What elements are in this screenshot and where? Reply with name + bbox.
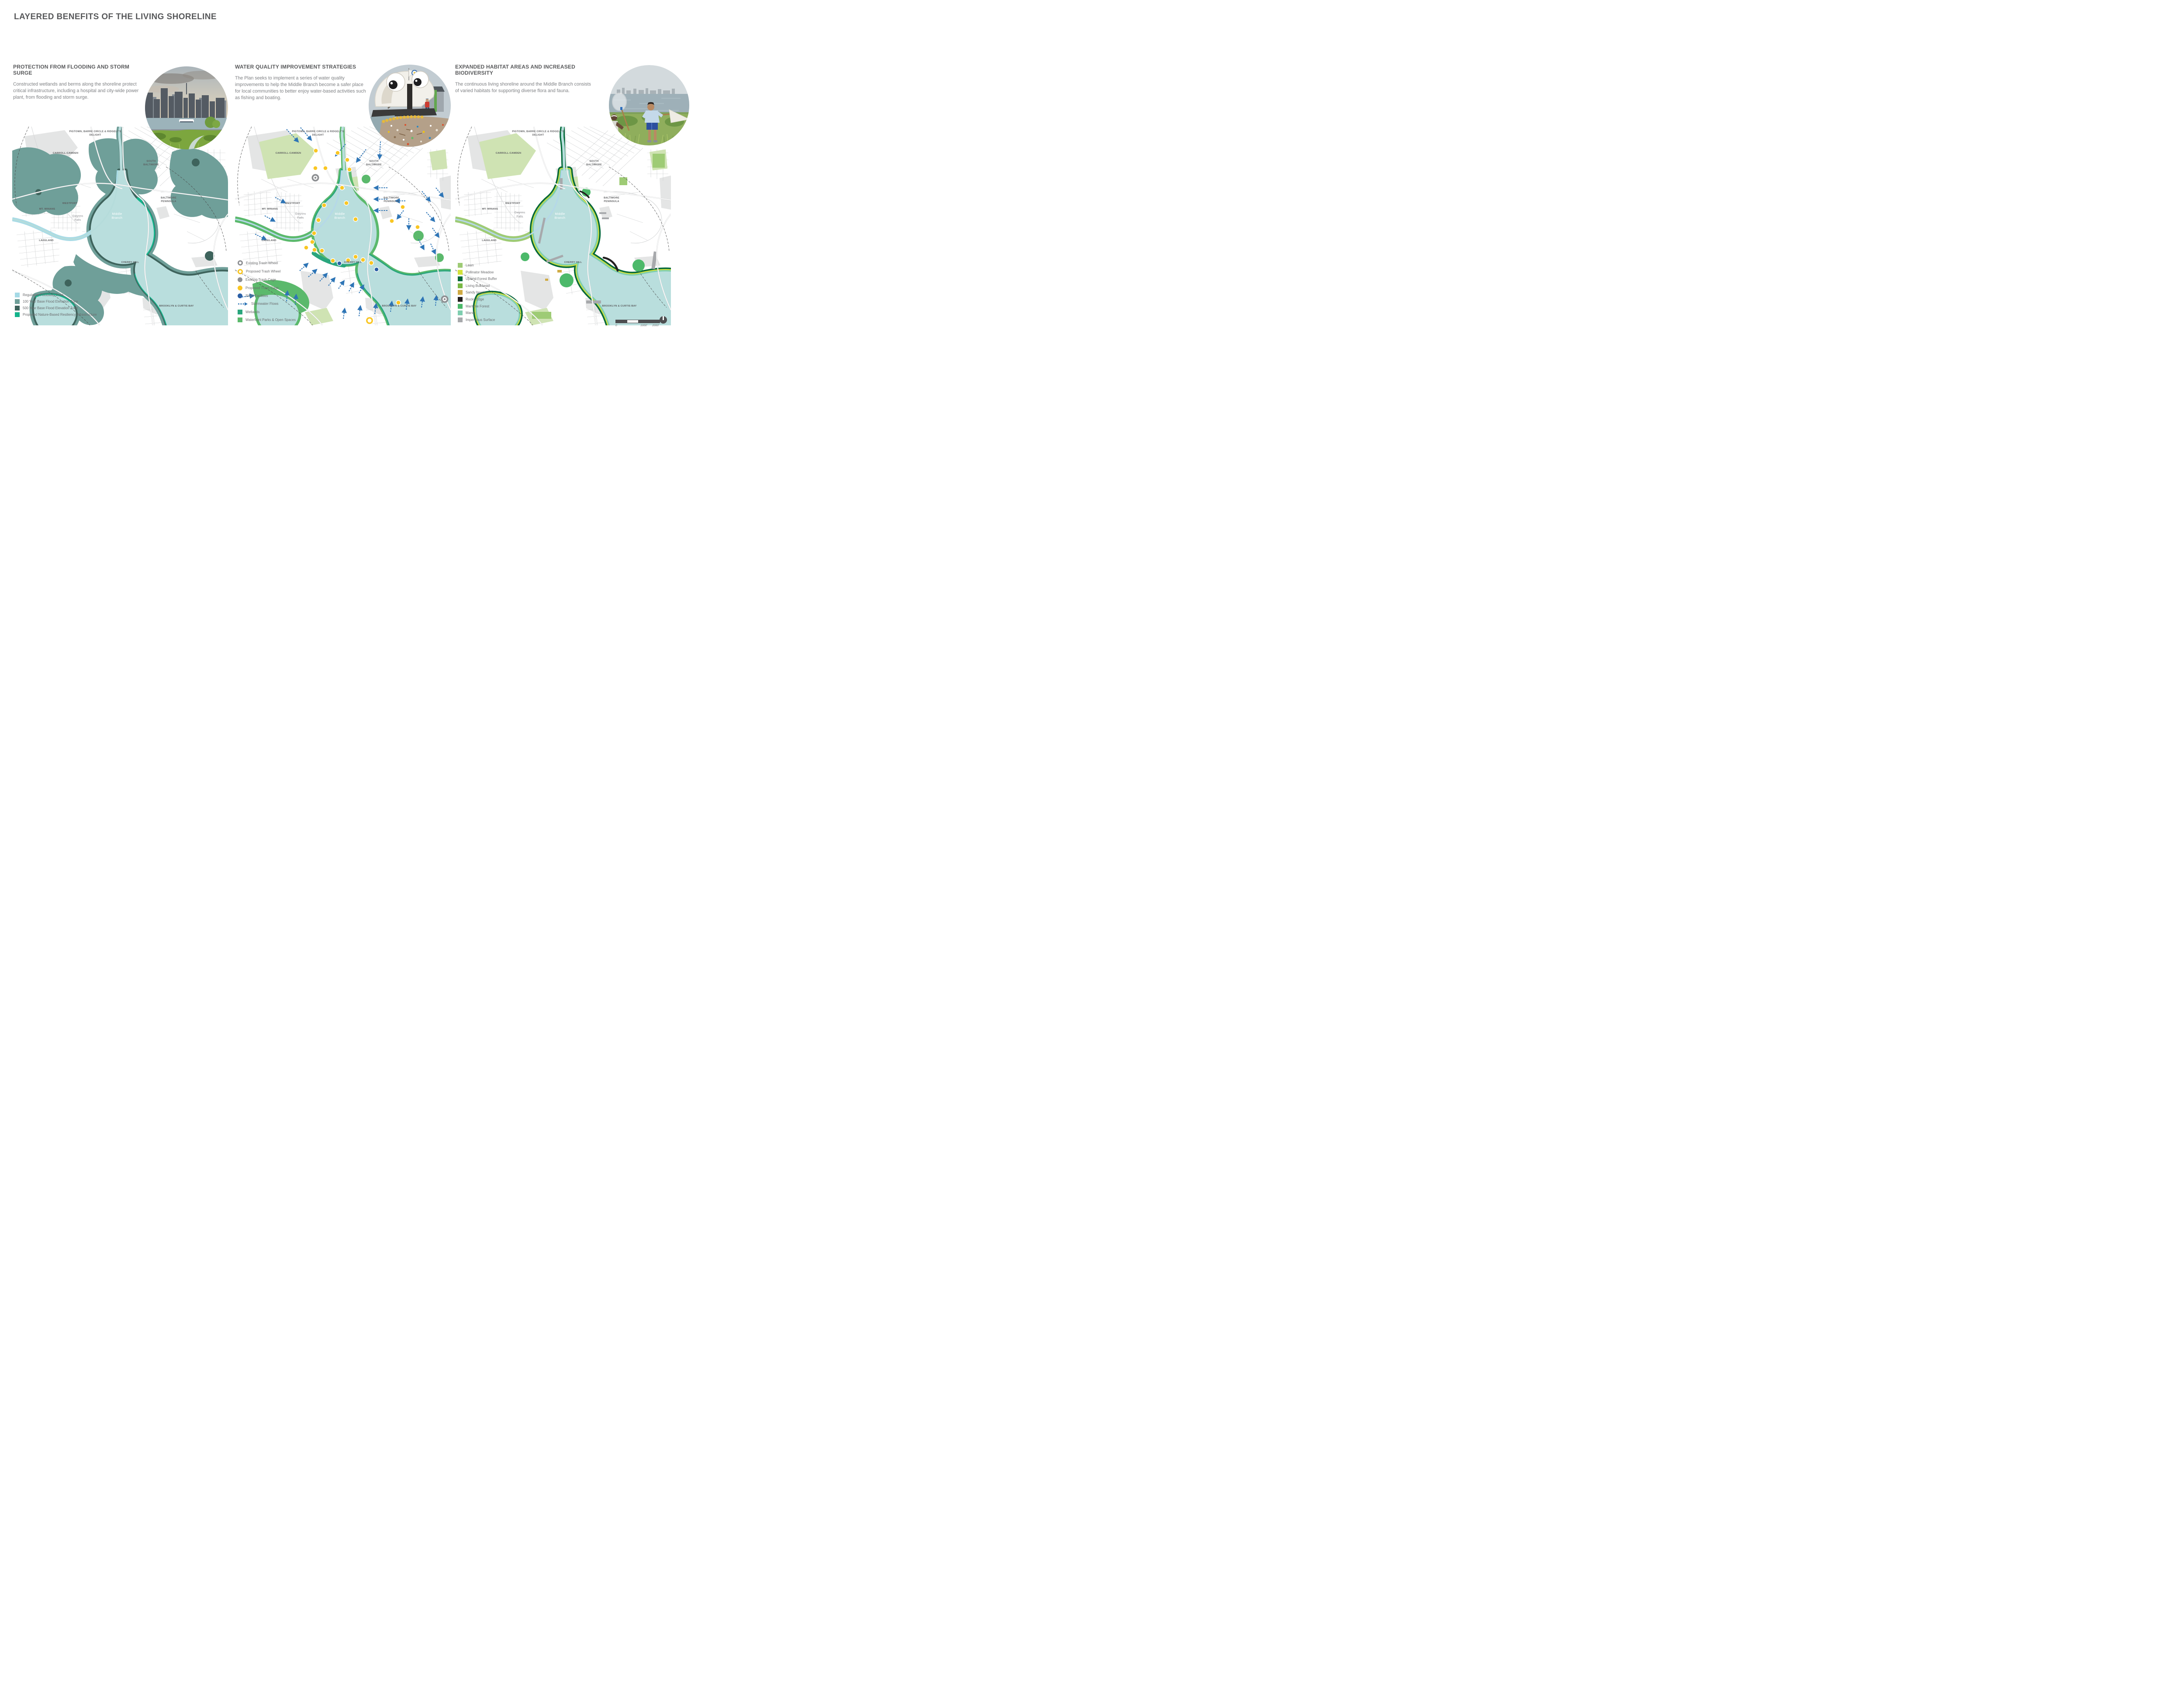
- section-heading-water-quality: WATER QUALITY IMPROVEMENT STRATEGIES: [235, 64, 366, 70]
- trash-wheel-photo: [369, 65, 451, 147]
- legend-item: Wetlands: [238, 310, 296, 314]
- map-label-brooklyn: BROOKLYN & CURTIS BAY: [602, 305, 636, 308]
- north-arrow-icon: [660, 316, 667, 324]
- legend-item: 500 Year Base Flood Elevation Zone: [15, 306, 97, 310]
- legend-item: Rocky Edge: [458, 297, 497, 302]
- legend-swatch: [458, 283, 463, 288]
- legend-item: Proposed Trash Wheel: [238, 269, 296, 274]
- map-label-mt-winans: MT. WINANS: [262, 208, 278, 211]
- map-label-baltimore-peninsula: BALTIMOREPENINSULA: [604, 197, 619, 203]
- map-label-patapsco-river: PatapscoRiver: [181, 255, 195, 262]
- page-title: LAYERED BENEFITS OF THE LIVING SHORELINE: [14, 12, 217, 22]
- wetland-skyline-photo-graphic: [145, 66, 228, 149]
- legend-swatch: [15, 306, 20, 310]
- habitat-legend: Lawn Pollinator Meadow Upland Forest Buf…: [458, 263, 497, 324]
- section-body-flood: Constructed wetlands and berms along the…: [13, 81, 144, 101]
- legend-item: Marsh: [458, 310, 497, 315]
- flood-legend: Regulatory Floodway Zone 100 Year Base F…: [15, 293, 97, 319]
- map-label-cherry-hill: CHERRY HILL: [564, 261, 582, 265]
- map-label-carroll-camden: CARROLL-CAMDEN: [53, 152, 79, 155]
- map-label-south-baltimore: SOUTHBALTIMORE: [366, 160, 382, 166]
- panel-habitat: EXPANDED HABITAT AREAS AND INCREASED BIO…: [455, 64, 595, 94]
- legend-swatch: [458, 276, 463, 281]
- legend-swatch: [458, 304, 463, 309]
- panel-water-quality: WATER QUALITY IMPROVEMENT STRATEGIES The…: [235, 64, 366, 101]
- map-label-lakeland: LAKELAND: [262, 239, 276, 243]
- legend-swatch: [458, 310, 463, 315]
- kids-with-nets-photo-graphic: [609, 65, 689, 145]
- legend-swatch: [238, 317, 242, 322]
- map-label-middle-branch: MiddleBranch: [335, 212, 346, 220]
- legend-item: Waterfront Parks & Open Spaces: [238, 317, 296, 322]
- map-label-pigtown: PIGTOWN, BARRE CIRCLE & RIDGELY’S DELIGH…: [67, 130, 123, 137]
- map-label-middle-branch: MiddleBranch: [555, 212, 566, 220]
- map-label-mt-winans: MT. WINANS: [39, 208, 55, 211]
- legend-swatch: [238, 310, 242, 314]
- legend-item: Existing Trash Wheel: [238, 260, 296, 266]
- trash-wheel-icon: [238, 269, 243, 274]
- legend-item: Existing Trash Cage: [238, 277, 296, 282]
- legend-item: Upland Forest Buffer: [458, 276, 497, 281]
- water-quality-legend: Existing Trash Wheel Proposed Trash Whee…: [238, 260, 296, 326]
- trash-wheel-icon: [238, 260, 243, 266]
- map-label-baltimore-peninsula: BALTIMOREPENINSULA: [384, 197, 399, 203]
- map-label-cherry-hill: CHERRY HILL: [121, 261, 139, 265]
- map-label-pigtown: PIGTOWN, BARRE CIRCLE & RIDGELY’S DELIGH…: [290, 130, 346, 137]
- trash-cage-icon: [238, 286, 242, 290]
- legend-item: Proposed Trash Cage: [238, 286, 296, 290]
- legend-swatch: [458, 270, 463, 275]
- habitat-kids-photo: [609, 65, 689, 145]
- trash-wheel-photo-graphic: [369, 65, 451, 147]
- map-label-patapsco-river: PatapscoRiver: [404, 255, 418, 262]
- legend-swatch: [458, 290, 463, 295]
- map-label-gwynns-falls: GwynnsFalls: [72, 214, 83, 222]
- flood-protection-photo: [145, 66, 228, 149]
- section-body-water-quality: The Plan seeks to implement a series of …: [235, 75, 366, 101]
- section-body-habitat: The continuous living shoreline around t…: [455, 81, 595, 94]
- legend-item: Maritime Forest: [458, 304, 497, 309]
- legend-item: SWM Facilities: [238, 293, 296, 298]
- trash-cage-icon: [238, 277, 242, 282]
- map-label-brooklyn: BROOKLYN & CURTIS BAY: [159, 305, 194, 308]
- map-label-westport: WESTPORT: [285, 202, 300, 206]
- map-water-quality: PIGTOWN, BARRE CIRCLE & RIDGELY’S DELIGH…: [235, 127, 451, 325]
- map-label-baltimore-peninsula: BALTIMOREPENINSULA: [161, 197, 176, 203]
- legend-item: Living Bulkhead: [458, 283, 497, 288]
- map-label-south-baltimore: SOUTHBALTIMORE: [586, 160, 602, 166]
- legend-swatch: [458, 317, 463, 322]
- legend-item: Pollinator Meadow: [458, 270, 497, 275]
- map-label-south-baltimore: SOUTHBALTIMORE: [143, 160, 159, 166]
- map-label-cherry-hill: CHERRY HILL: [344, 261, 362, 265]
- map-label-gwynns-falls: GwynnsFalls: [295, 212, 306, 220]
- swm-facility-icon: [238, 293, 242, 298]
- scale-label-1000: 1000': [640, 324, 647, 327]
- legend-swatch: [458, 297, 463, 302]
- map-label-lakeland: LAKELAND: [482, 239, 496, 243]
- map-label-westport: WESTPORT: [505, 202, 520, 206]
- scale-bar: 0 1000' 2000': [615, 320, 660, 328]
- legend-item: 100 Year Base Flood Elevation Zone: [15, 299, 97, 304]
- legend-item: Stormwater Flows: [238, 302, 296, 306]
- map-label-westport: WESTPORT: [62, 202, 77, 206]
- legend-item: Regulatory Floodway Zone: [15, 293, 97, 297]
- legend-swatch: [15, 293, 20, 297]
- map-flood-protection: PIGTOWN, BARRE CIRCLE & RIDGELY’S DELIGH…: [12, 127, 228, 325]
- map-habitat: PIGTOWN, BARRE CIRCLE & RIDGELY’S DELIGH…: [455, 127, 671, 325]
- map-label-mt-winans: MT. WINANS: [482, 208, 498, 211]
- legend-swatch: [15, 299, 20, 304]
- report-page: LAYERED BENEFITS OF THE LIVING SHORELINE…: [0, 0, 692, 338]
- stormwater-arrow-icon: [238, 302, 248, 306]
- map-label-pigtown: PIGTOWN, BARRE CIRCLE & RIDGELY’S DELIGH…: [510, 130, 566, 137]
- map-label-lakeland: LAKELAND: [39, 239, 53, 243]
- scale-label-2000: 2000': [652, 324, 659, 327]
- proposed-trash-wheel-marker: [366, 317, 373, 324]
- map-label-middle-branch: MiddleBranch: [112, 212, 123, 220]
- map-label-gwynns-falls: GwynnsFalls: [514, 211, 525, 218]
- section-heading-flood: PROTECTION FROM FLOODING AND STORM SURGE: [13, 64, 144, 76]
- legend-item: Sandy beach: [458, 290, 497, 295]
- map-label-patapsco-river: PatapscoRiver: [624, 255, 638, 262]
- legend-item: Proposed Nature-Based Resiliency Infrast…: [15, 312, 97, 317]
- panel-flood-protection: PROTECTION FROM FLOODING AND STORM SURGE…: [13, 64, 144, 101]
- scale-label-0: 0: [615, 324, 617, 327]
- legend-item: Impervious Surface: [458, 317, 497, 322]
- section-heading-habitat: EXPANDED HABITAT AREAS AND INCREASED BIO…: [455, 64, 595, 76]
- legend-swatch: [458, 263, 463, 268]
- legend-item: Lawn: [458, 263, 497, 268]
- map-label-carroll-camden: CARROLL-CAMDEN: [276, 152, 301, 155]
- scale-bar-graphic: [615, 320, 660, 323]
- map-label-carroll-camden: CARROLL-CAMDEN: [496, 152, 522, 155]
- legend-swatch: [15, 312, 20, 317]
- map-label-brooklyn: BROOKLYN & CURTIS BAY: [382, 305, 416, 308]
